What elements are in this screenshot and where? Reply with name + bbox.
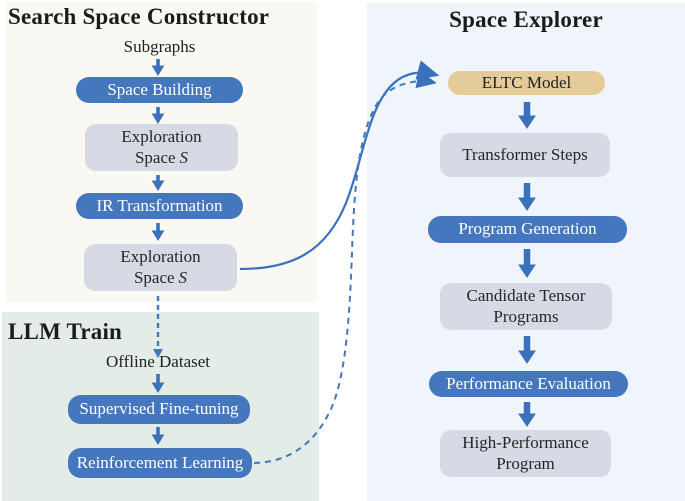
space-variable: S <box>175 268 188 287</box>
exploration-space-line2: SpaceS <box>134 268 187 289</box>
space-building-node: Space Building <box>76 77 243 103</box>
flowchart-figure: Search Space Constructor LLM Train Space… <box>0 0 685 501</box>
llm-train-panel-title: LLM Train <box>8 319 122 345</box>
exploration-space-node-2: Exploration SpaceS <box>84 244 237 291</box>
reinforcement-learning-node: Reinforcement Learning <box>68 448 252 478</box>
supervised-fine-tuning-node: Supervised Fine-tuning <box>68 395 250 424</box>
exploration-space-line2: SpaceS <box>135 148 188 169</box>
eltc-model-node: ELTC Model <box>448 71 605 95</box>
constructor-panel-title: Search Space Constructor <box>8 4 269 30</box>
exploration-space-line1: Exploration <box>121 127 201 148</box>
explorer-panel-title: Space Explorer <box>367 7 685 33</box>
space-variable: S <box>176 148 189 167</box>
program-generation-node: Program Generation <box>428 216 627 243</box>
transformer-steps-node: Transformer Steps <box>440 133 610 177</box>
high-performance-program-node: High-Performance Program <box>440 430 611 477</box>
offline-dataset-label: Offline Dataset <box>58 352 258 372</box>
candidate-tensor-programs-node: Candidate Tensor Programs <box>440 283 612 330</box>
ir-transformation-node: IR Transformation <box>76 193 243 219</box>
exploration-space-line1: Exploration <box>120 247 200 268</box>
subgraphs-label: Subgraphs <box>76 37 243 57</box>
performance-evaluation-node: Performance Evaluation <box>429 371 628 397</box>
exploration-space-node-1: Exploration SpaceS <box>85 124 238 171</box>
